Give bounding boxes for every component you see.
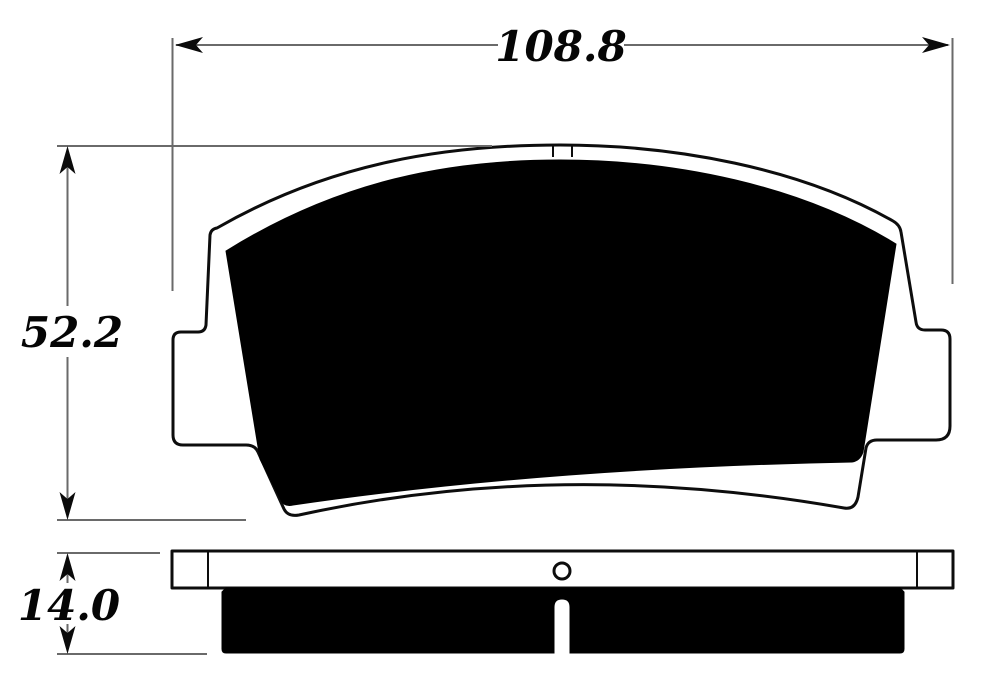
- height-dimension-label: 52.2: [21, 308, 123, 357]
- brake-pad-drawing: 108.8 52.2 14.0: [0, 0, 991, 682]
- width-dimension-label: 108.8: [495, 22, 627, 71]
- friction-material-side: [222, 588, 904, 653]
- drawing-canvas: 108.8 52.2 14.0: [0, 0, 991, 682]
- side-view: [172, 551, 953, 653]
- friction-material-front: [226, 160, 896, 505]
- front-view: [173, 145, 950, 515]
- thickness-dimension-label: 14.0: [18, 581, 120, 630]
- center-hole: [554, 563, 570, 579]
